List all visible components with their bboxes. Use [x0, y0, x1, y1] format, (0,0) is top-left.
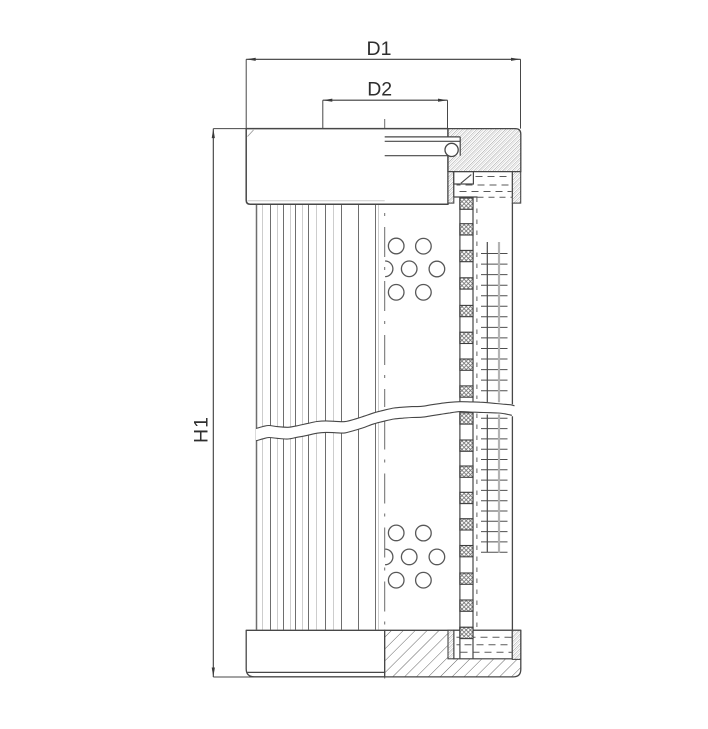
svg-text:H1: H1 — [191, 416, 213, 443]
svg-text:D1: D1 — [367, 38, 392, 60]
svg-text:D2: D2 — [367, 78, 392, 100]
